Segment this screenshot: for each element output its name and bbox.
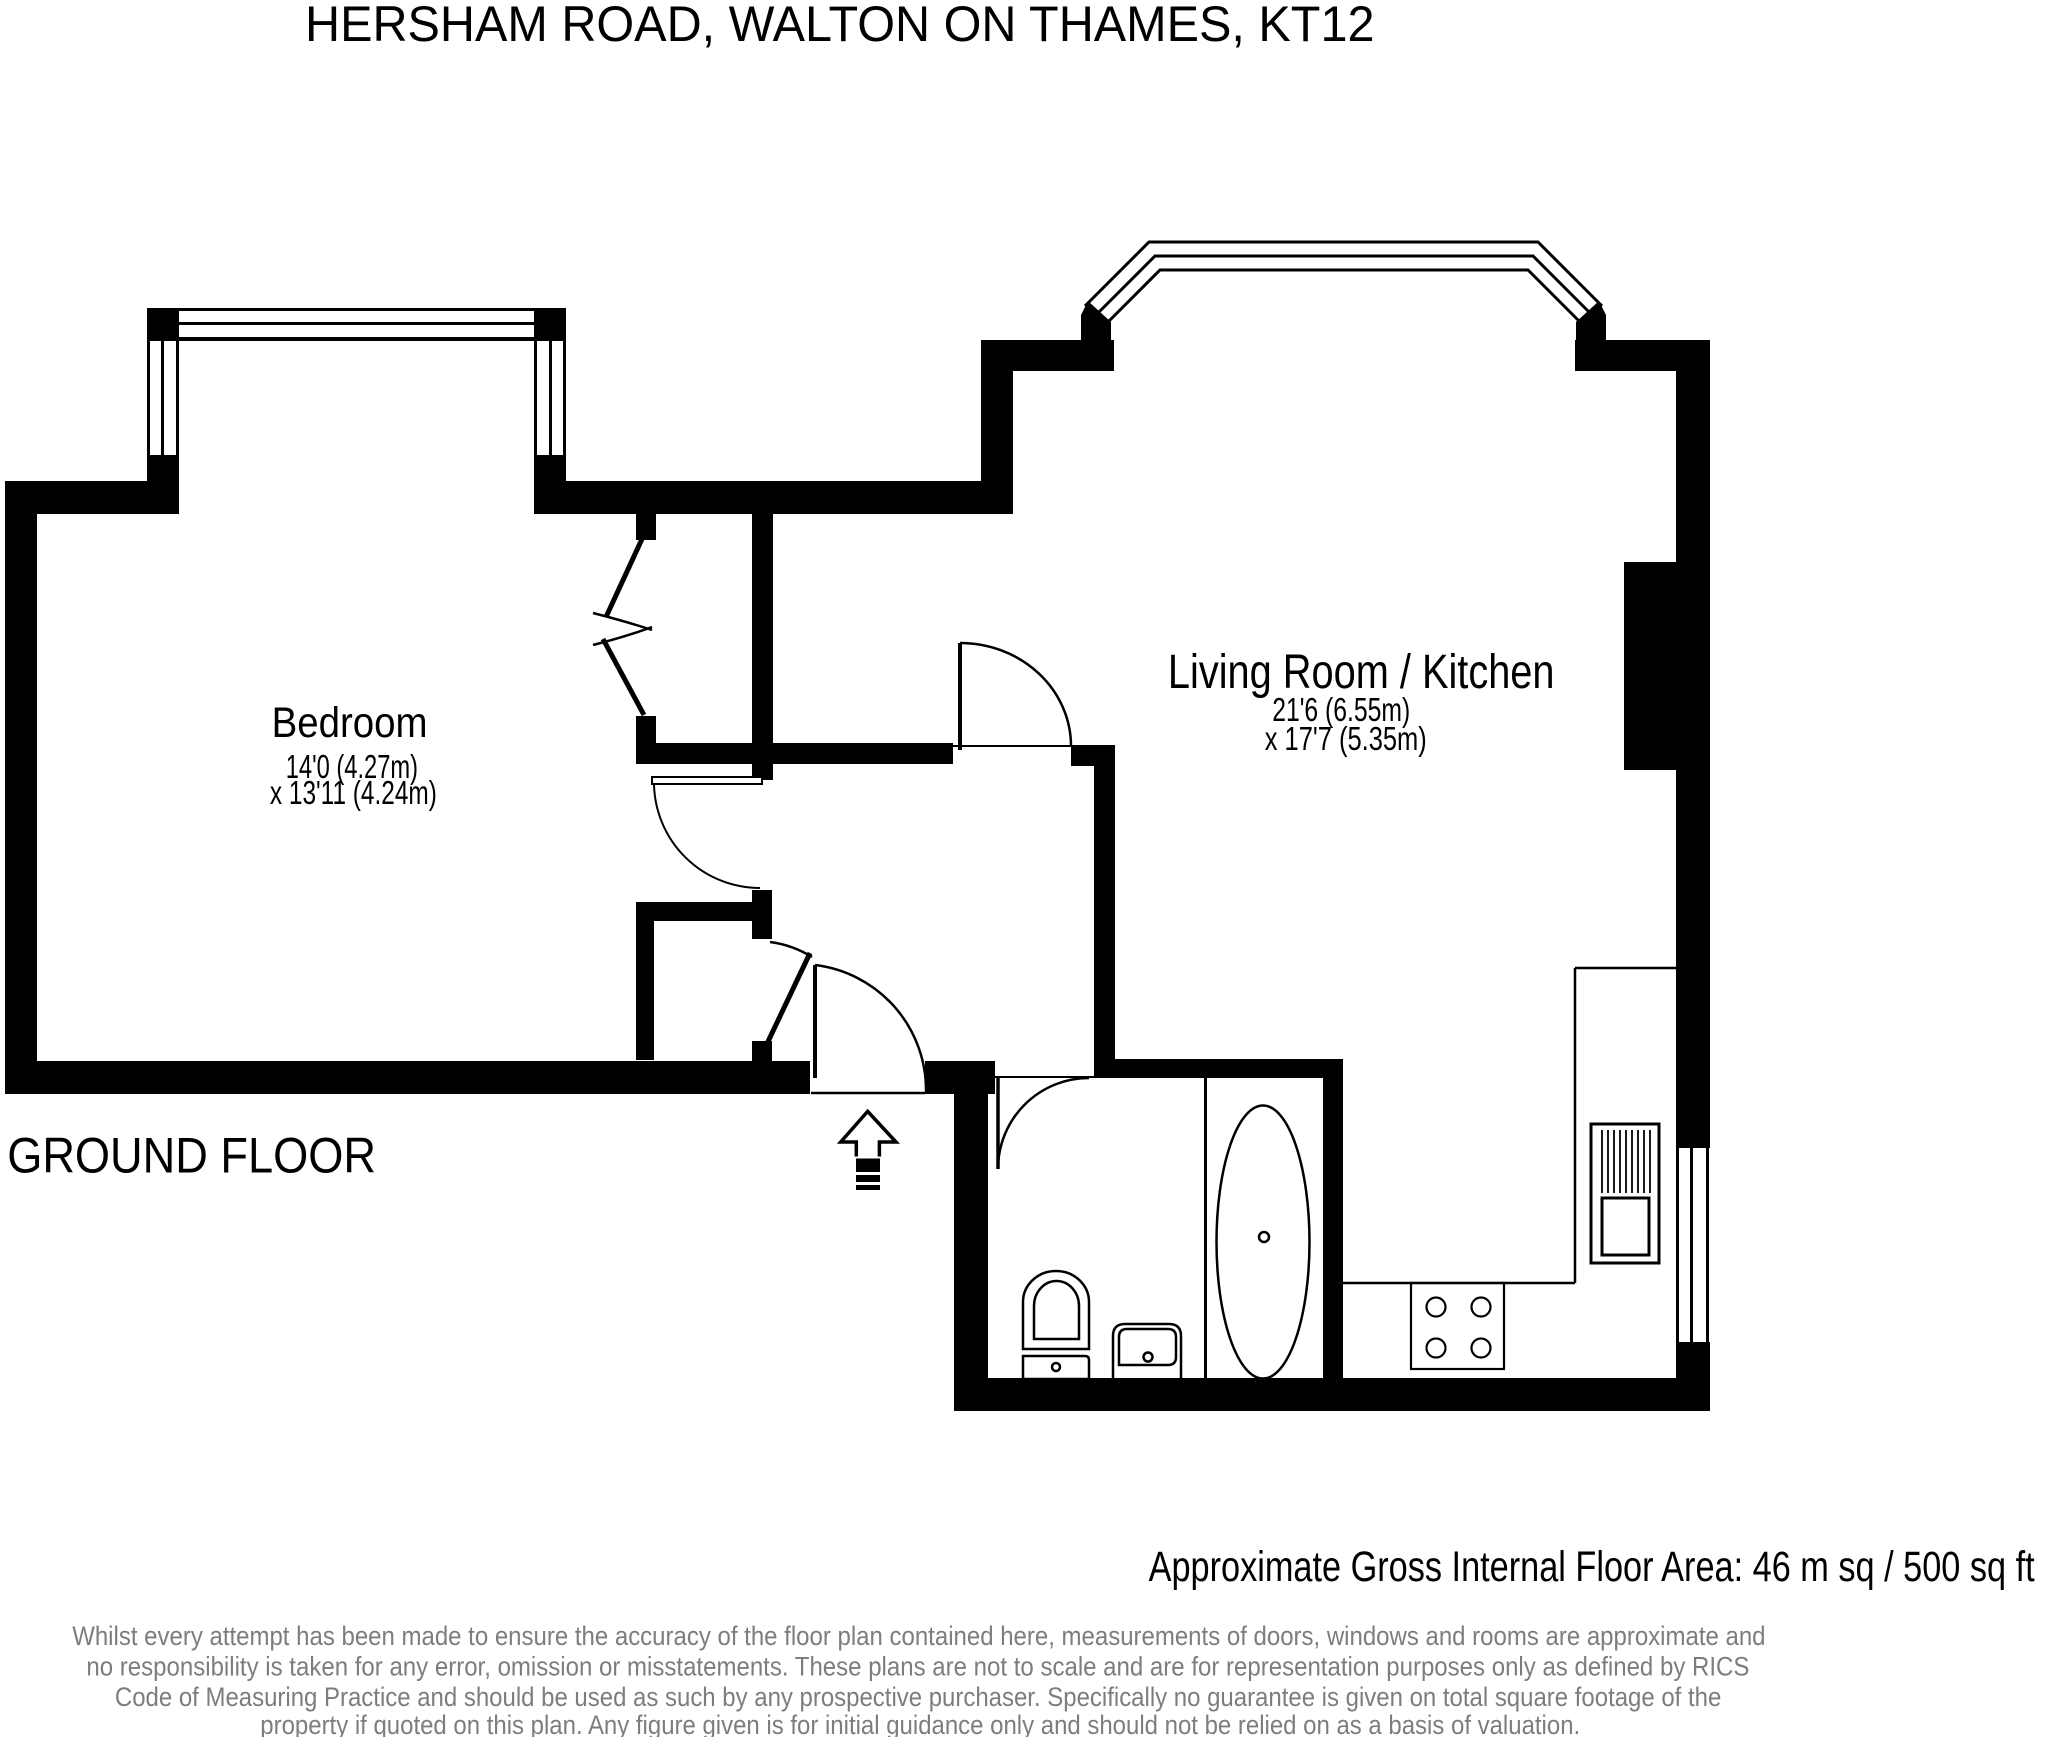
svg-text:Bedroom: Bedroom [272, 698, 428, 746]
svg-text:Whilst every attempt has been: Whilst every attempt has been made to en… [72, 1622, 1765, 1652]
svg-text:x 17'7 (5.35m): x 17'7 (5.35m) [1265, 721, 1427, 758]
svg-text:property if quoted on this pla: property if quoted on this plan. Any fig… [260, 1711, 1580, 1737]
svg-text:Living Room / Kitchen: Living Room / Kitchen [1168, 646, 1555, 699]
svg-text:GROUND FLOOR: GROUND FLOOR [7, 1129, 376, 1185]
svg-text:Approximate Gross Internal Flo: Approximate Gross Internal Floor Area: 4… [1149, 1543, 2035, 1591]
svg-text:no responsibility is taken for: no responsibility is taken for any error… [86, 1652, 1749, 1682]
svg-text:Code of Measuring Practice and: Code of Measuring Practice and should be… [115, 1683, 1721, 1713]
svg-text:HERSHAM ROAD, WALTON ON THAMES: HERSHAM ROAD, WALTON ON THAMES, KT12 [305, 0, 1374, 52]
svg-text:x 13'11 (4.24m): x 13'11 (4.24m) [270, 776, 437, 812]
